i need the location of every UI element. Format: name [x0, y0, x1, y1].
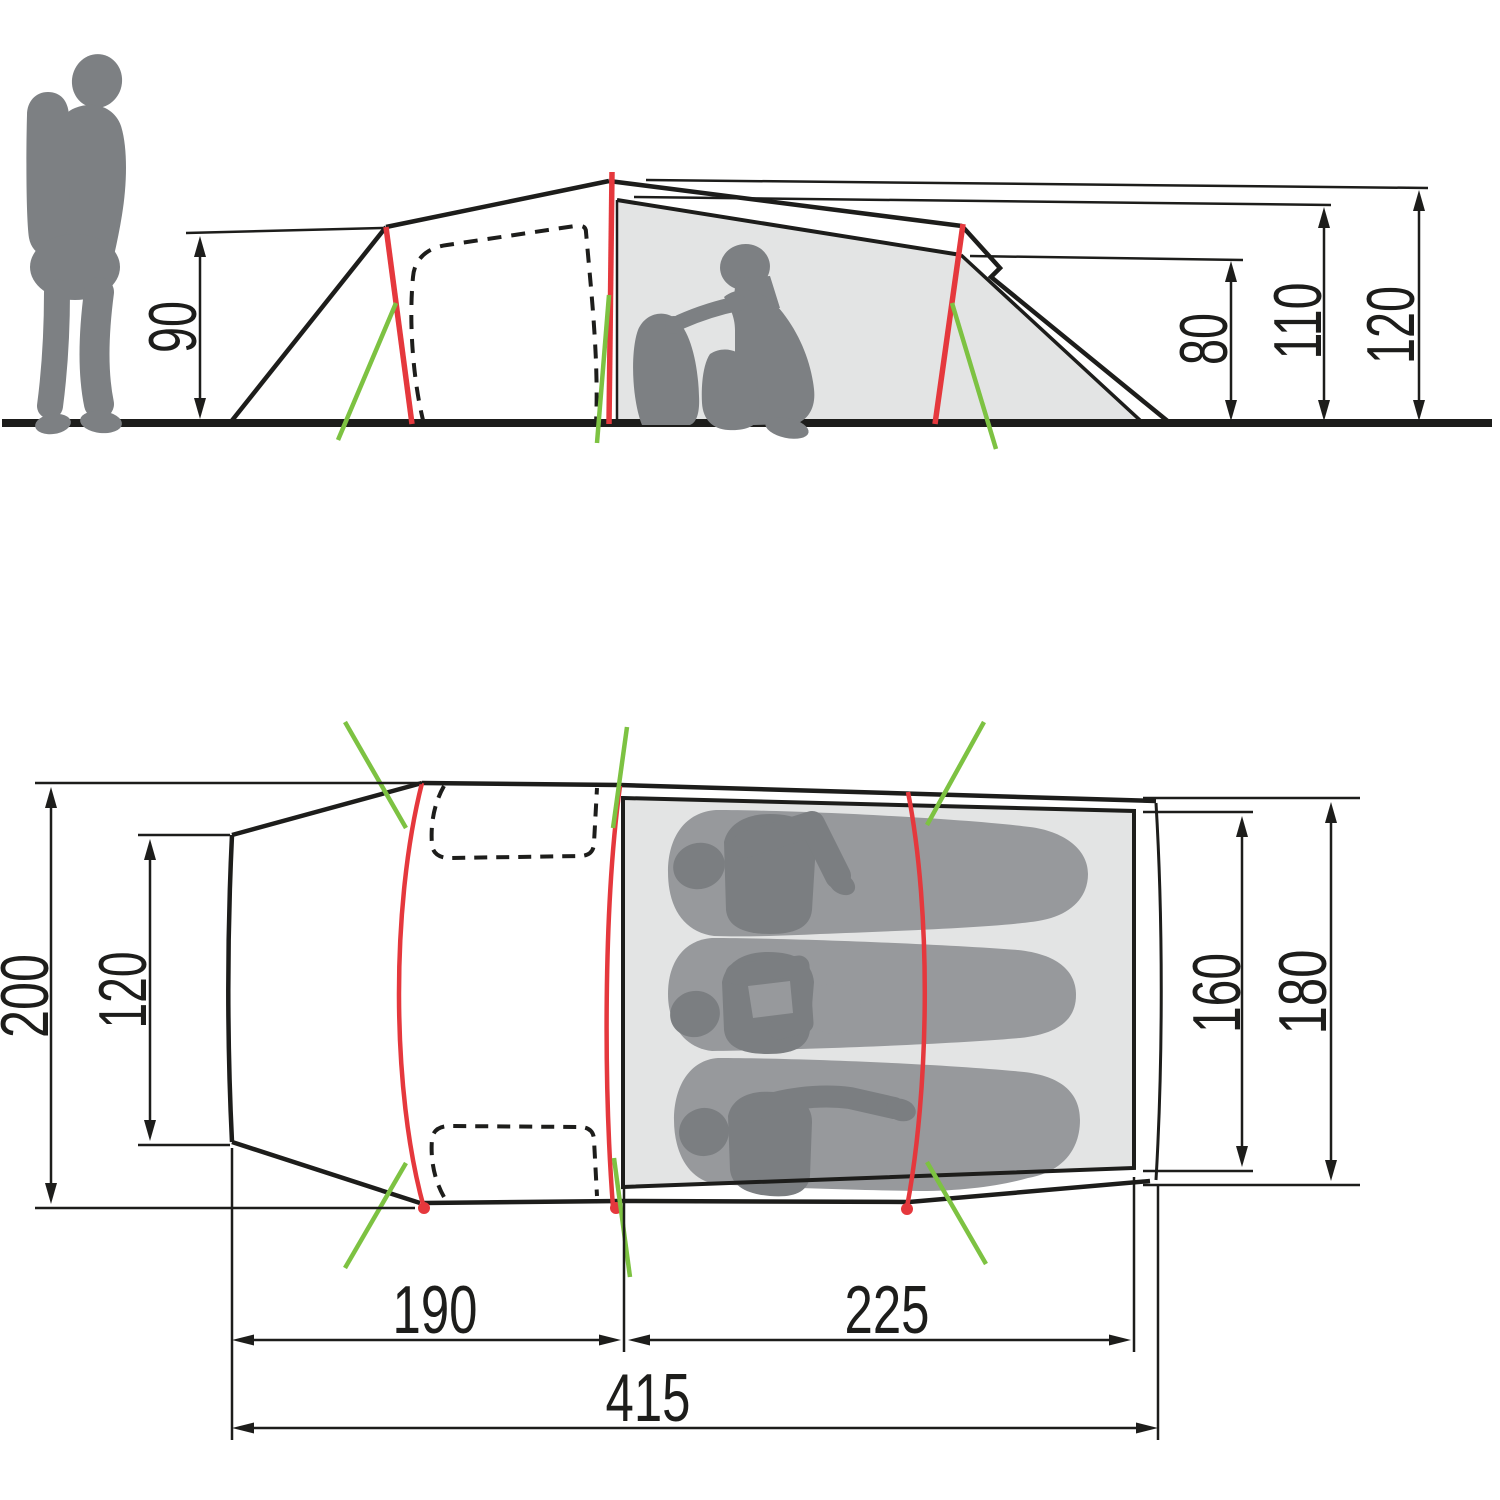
svg-text:80: 80	[1166, 313, 1242, 365]
svg-text:225: 225	[845, 1272, 930, 1348]
svg-text:415: 415	[606, 1360, 691, 1436]
svg-text:120: 120	[85, 952, 161, 1029]
svg-text:110: 110	[1260, 283, 1336, 360]
svg-text:190: 190	[393, 1272, 478, 1348]
svg-text:160: 160	[1179, 953, 1255, 1033]
svg-text:180: 180	[1265, 950, 1341, 1035]
svg-text:90: 90	[135, 301, 211, 353]
svg-text:120: 120	[1353, 286, 1429, 364]
svg-text:200: 200	[0, 954, 63, 1038]
